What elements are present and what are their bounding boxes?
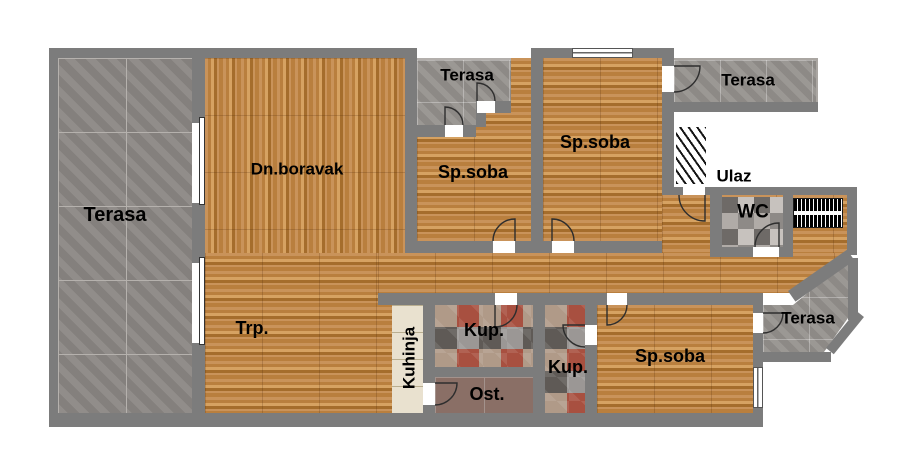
room-label-terasa-ne: Terasa bbox=[721, 72, 775, 89]
room-label-wc: WC bbox=[737, 203, 769, 222]
door-gap bbox=[662, 66, 674, 92]
door-gap bbox=[445, 125, 463, 137]
wall bbox=[710, 247, 793, 257]
window bbox=[199, 117, 205, 205]
door-gap bbox=[495, 293, 517, 305]
room-label-kuhinja: Kuhinja bbox=[401, 327, 418, 389]
wall bbox=[763, 352, 831, 362]
door-gap bbox=[477, 101, 495, 113]
wall bbox=[783, 195, 793, 247]
room-label-trp: Trp. bbox=[235, 319, 268, 337]
wall bbox=[192, 50, 205, 413]
window bbox=[753, 367, 763, 408]
wall bbox=[378, 293, 763, 305]
wall bbox=[533, 293, 545, 413]
door-gap bbox=[552, 241, 574, 253]
room-label-dn-boravak: Dn.boravak bbox=[251, 161, 344, 178]
door-gap bbox=[493, 241, 515, 253]
doormat-hatch bbox=[793, 198, 843, 228]
door-gap bbox=[753, 313, 763, 333]
door-gap bbox=[585, 325, 597, 345]
wall bbox=[531, 48, 543, 253]
entry-stairs-hatch bbox=[676, 127, 706, 184]
room-label-terasa-mid: Terasa bbox=[440, 67, 494, 84]
wall bbox=[585, 293, 597, 413]
room-label-ulaz: Ulaz bbox=[717, 168, 752, 185]
door-gap bbox=[607, 293, 627, 305]
room-label-terasa-left: Terasa bbox=[83, 205, 146, 225]
wall bbox=[49, 50, 58, 427]
room-label-sp-soba-mid: Sp.soba bbox=[438, 163, 508, 181]
door-gap bbox=[753, 247, 779, 257]
room-label-kup-2: Kup. bbox=[548, 358, 588, 376]
wall bbox=[662, 102, 818, 112]
room-label-ost: Ost. bbox=[469, 385, 504, 403]
wall bbox=[49, 413, 763, 427]
door-gap bbox=[423, 383, 435, 405]
wall bbox=[847, 195, 857, 255]
wall bbox=[435, 367, 533, 377]
wall bbox=[405, 48, 417, 253]
wall bbox=[49, 48, 415, 58]
floor-plan: Terasa Dn.boravak Trp. Terasa Sp.soba Sp… bbox=[0, 0, 905, 475]
room-floor-sp-soba-ne bbox=[543, 58, 662, 247]
window bbox=[199, 257, 205, 345]
room-label-sp-soba-se: Sp.soba bbox=[635, 347, 705, 365]
room-label-terasa-se: Terasa bbox=[781, 310, 835, 327]
room-label-kup-1: Kup. bbox=[464, 321, 504, 339]
window bbox=[572, 48, 633, 58]
door-gap bbox=[683, 187, 705, 195]
wall bbox=[710, 195, 722, 247]
room-floor-terasa-left bbox=[58, 58, 192, 413]
room-label-sp-soba-ne: Sp.soba bbox=[560, 133, 630, 151]
corridor-floor bbox=[378, 253, 847, 293]
wall bbox=[417, 241, 662, 253]
room-floor-dn-boravak bbox=[205, 58, 405, 253]
